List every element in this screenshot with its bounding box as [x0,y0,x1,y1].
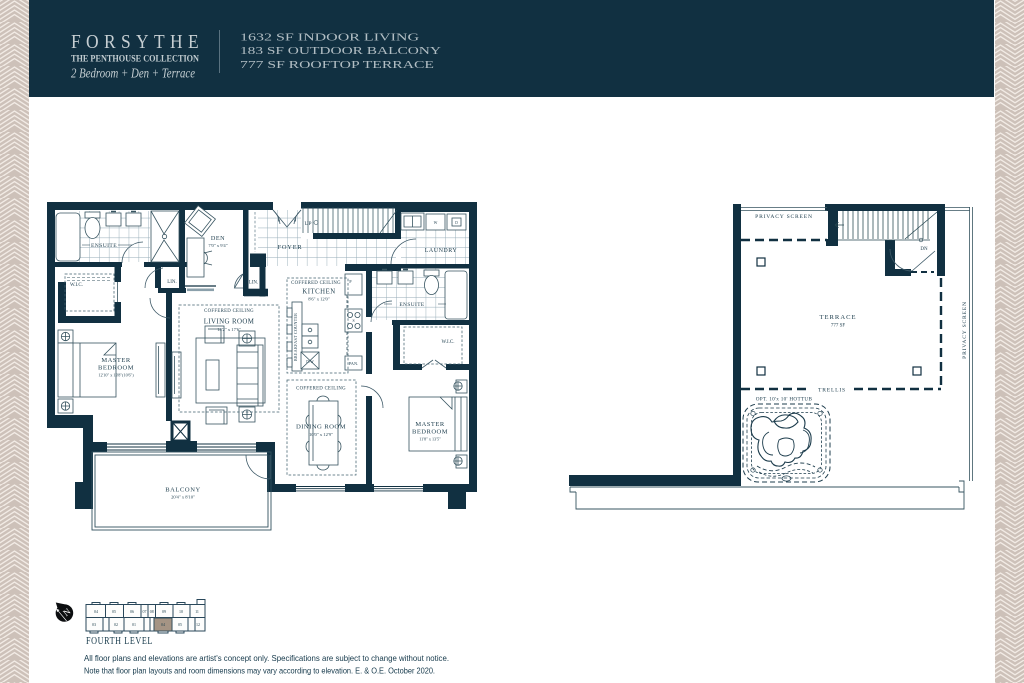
svg-text:LIN.: LIN. [249,281,259,286]
svg-text:F: F [349,279,352,284]
svg-text:05: 05 [178,622,182,627]
svg-text:02: 02 [114,622,118,627]
svg-text:01: 01 [132,622,136,627]
svg-text:BEDROOM: BEDROOM [412,429,448,436]
svg-text:PAN.: PAN. [349,361,358,366]
svg-text:12: 12 [196,622,200,627]
svg-text:DN: DN [920,247,928,252]
svg-text:777 SF ROOFTOP TERRACE: 777 SF ROOFTOP TERRACE [240,59,434,71]
svg-text:COFFERED CEILING: COFFERED CEILING [296,387,346,392]
svg-text:08: 08 [150,609,154,614]
svg-text:OPT. 10'x 10' HOTTUB: OPT. 10'x 10' HOTTUB [756,397,813,403]
svg-text:FOURTH LEVEL: FOURTH LEVEL [86,635,153,647]
svg-text:BEDROOM: BEDROOM [98,365,134,372]
svg-text:MASTER: MASTER [415,421,445,428]
svg-text:10: 10 [179,609,183,614]
svg-text:DEN: DEN [211,235,225,242]
svg-text:1632 SF INDOOR LIVING: 1632 SF INDOOR LIVING [240,31,419,43]
svg-text:2 Bedroom + Den + Terrace: 2 Bedroom + Den + Terrace [71,66,195,81]
svg-text:KITCHEN: KITCHEN [302,289,335,296]
svg-text:BREAKFAST COUNTER: BREAKFAST COUNTER [293,313,298,361]
svg-text:11'8" x 13'5": 11'8" x 13'5" [419,437,441,442]
svg-text:All floor plans and elevations: All floor plans and elevations are artis… [84,653,449,663]
svg-text:03: 03 [92,622,96,627]
svg-text:07: 07 [143,609,147,614]
svg-text:UP: UP [305,221,312,227]
svg-text:7'0" x 9'4": 7'0" x 9'4" [208,243,227,248]
svg-text:THE PENTHOUSE COLLECTION: THE PENTHOUSE COLLECTION [71,54,199,64]
svg-text:W: W [434,220,438,225]
svg-text:14'2" x 17'6": 14'2" x 17'6" [217,327,241,332]
svg-text:W.I.C.: W.I.C. [70,283,83,288]
svg-text:D: D [455,221,458,225]
svg-text:PRIVACY SCREEN: PRIVACY SCREEN [962,301,968,359]
svg-text:S: S [352,319,354,323]
svg-text:20'4" x 8'10": 20'4" x 8'10" [171,495,195,500]
svg-text:LIN.: LIN. [167,280,177,285]
svg-text:TRELLIS: TRELLIS [818,388,846,394]
svg-text:183 SF OUTDOOR BALCONY: 183 SF OUTDOOR BALCONY [240,45,441,57]
svg-text:COFFERED CEILING: COFFERED CEILING [204,309,254,314]
svg-text:ENSUITE: ENSUITE [91,243,117,249]
svg-text:TERRACE: TERRACE [819,314,856,321]
svg-text:Note that floor plan layouts a: Note that floor plan layouts and room di… [84,666,435,676]
svg-text:10'0" x 12'9": 10'0" x 12'9" [309,432,333,437]
svg-text:09: 09 [162,609,166,614]
svg-text:FOYER: FOYER [278,244,303,251]
svg-text:12'10" x 13'8"(10'6"): 12'10" x 13'8"(10'6") [98,373,134,378]
svg-text:777 SF: 777 SF [831,324,846,329]
svg-text:8'6" x 12'0": 8'6" x 12'0" [308,297,330,302]
svg-text:04: 04 [161,622,165,627]
svg-text:BALCONY: BALCONY [165,487,201,494]
svg-text:PRIVACY SCREEN: PRIVACY SCREEN [755,214,813,220]
svg-text:04: 04 [94,609,98,614]
svg-text:DINING ROOM: DINING ROOM [296,424,346,431]
svg-text:05: 05 [112,609,116,614]
svg-text:11: 11 [195,609,199,614]
svg-text:ENSUITE: ENSUITE [399,302,425,308]
svg-text:FORSYTHE: FORSYTHE [71,32,204,53]
svg-text:COFFERED CEILING: COFFERED CEILING [291,281,341,286]
svg-text:LIVING ROOM: LIVING ROOM [204,319,255,326]
svg-text:MASTER: MASTER [101,357,131,364]
svg-text:W.I.C.: W.I.C. [441,340,454,345]
svg-text:D/W: D/W [306,360,314,364]
svg-text:06: 06 [130,609,134,614]
svg-text:LAUNDRY: LAUNDRY [425,248,458,254]
